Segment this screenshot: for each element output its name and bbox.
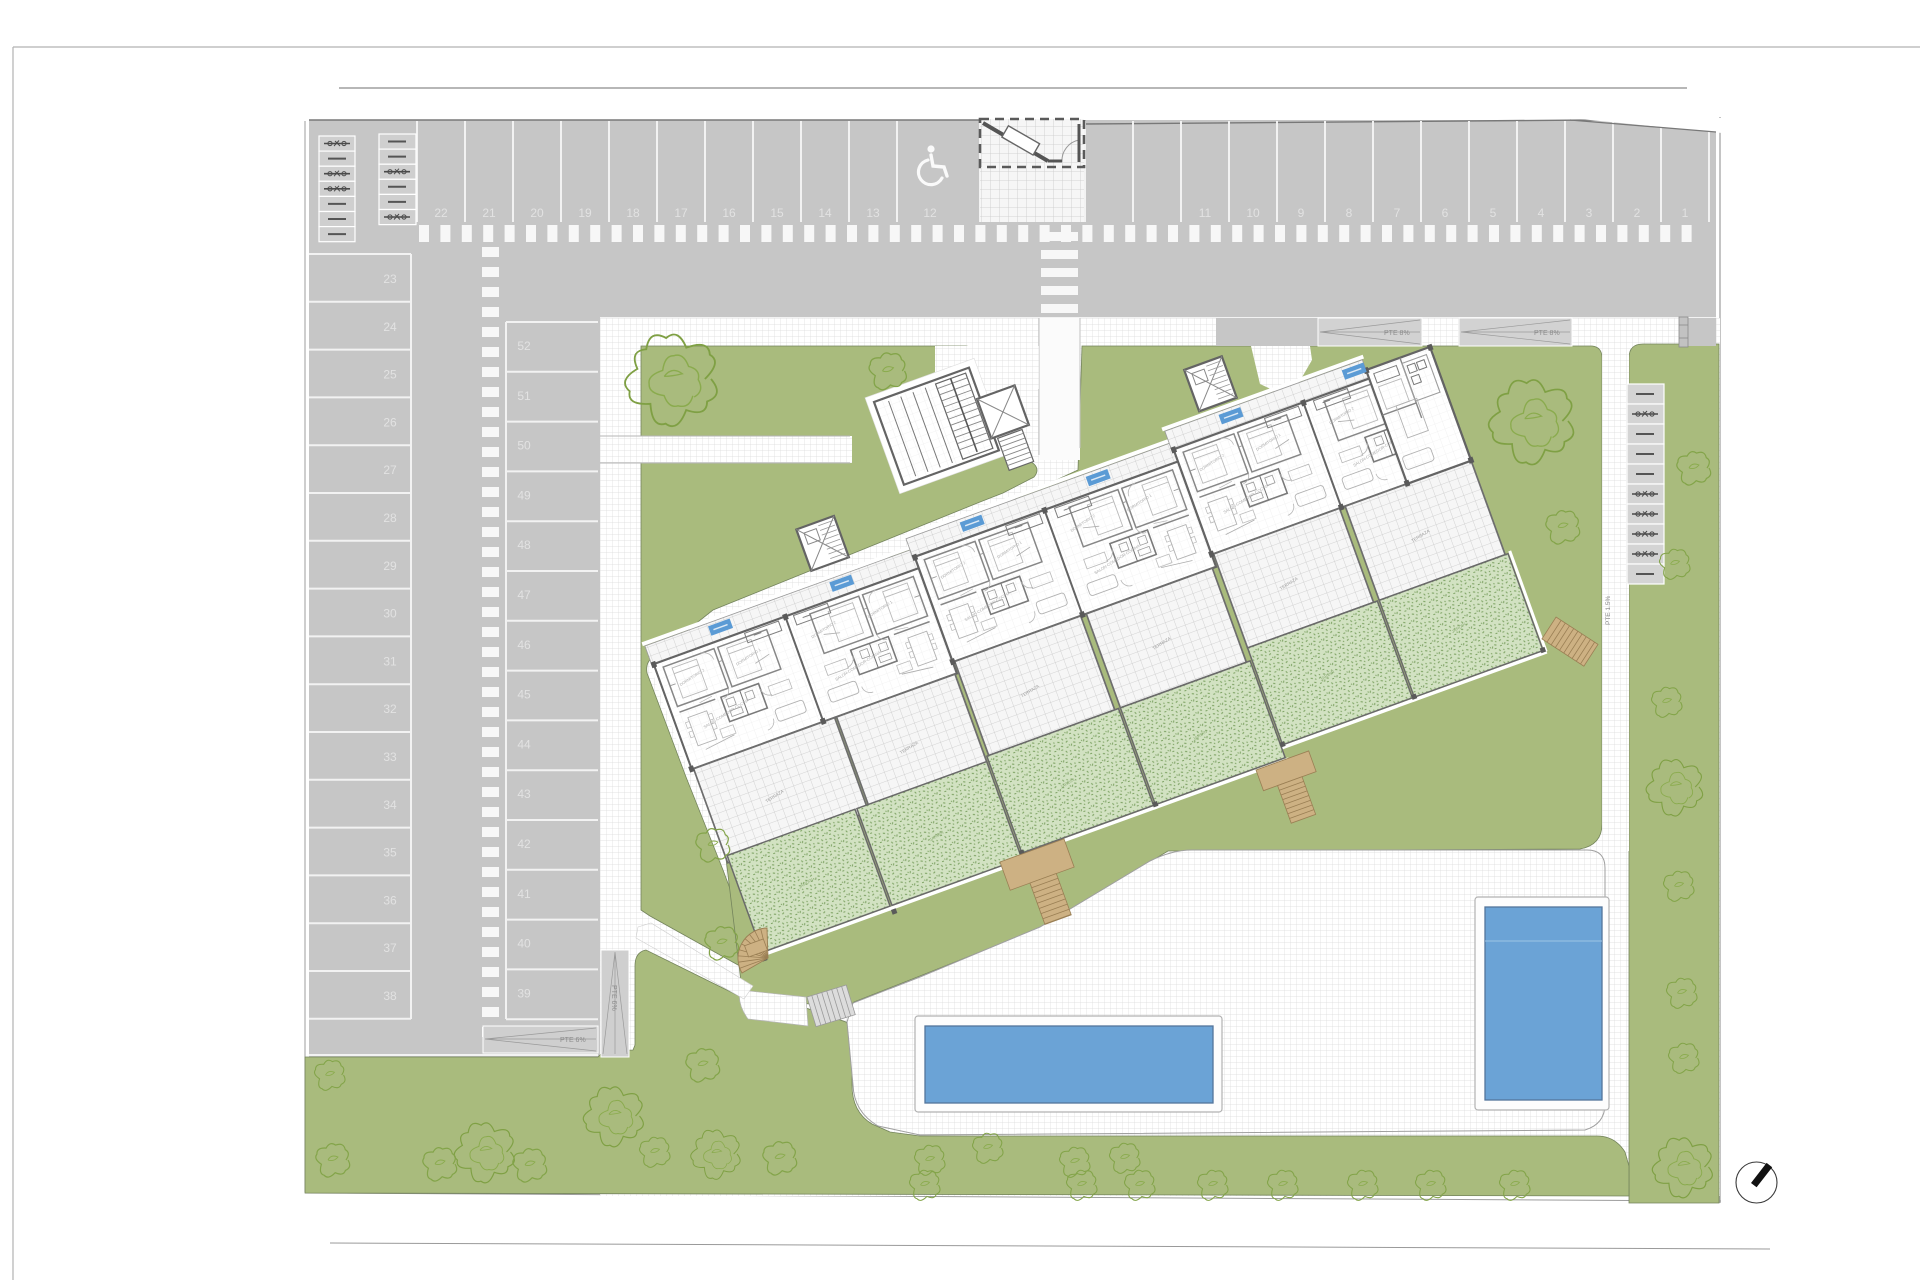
svg-text:27: 27 (383, 463, 397, 477)
svg-text:42: 42 (517, 837, 531, 851)
svg-text:2: 2 (1634, 206, 1641, 220)
svg-text:43: 43 (517, 787, 531, 801)
svg-text:39: 39 (517, 986, 531, 1000)
svg-text:21: 21 (482, 206, 496, 220)
svg-text:7: 7 (1394, 206, 1401, 220)
svg-text:11: 11 (1199, 206, 1212, 220)
svg-text:12: 12 (923, 206, 937, 220)
svg-text:49: 49 (517, 488, 531, 502)
svg-text:41: 41 (517, 887, 531, 901)
svg-text:18: 18 (626, 206, 640, 220)
svg-text:19: 19 (578, 206, 592, 220)
svg-text:15: 15 (770, 206, 784, 220)
svg-text:30: 30 (383, 607, 397, 621)
svg-text:17: 17 (674, 206, 688, 220)
svg-text:35: 35 (383, 846, 397, 860)
svg-text:37: 37 (383, 941, 397, 955)
svg-text:45: 45 (517, 688, 531, 702)
svg-text:8: 8 (1346, 206, 1353, 220)
svg-text:3: 3 (1586, 206, 1593, 220)
svg-text:PTE 8%: PTE 8% (1534, 330, 1560, 337)
svg-text:34: 34 (383, 798, 397, 812)
svg-text:PTE 6%: PTE 6% (560, 1037, 586, 1044)
svg-text:33: 33 (383, 750, 397, 764)
svg-text:36: 36 (383, 893, 397, 907)
svg-text:51: 51 (517, 389, 531, 403)
svg-text:1: 1 (1682, 206, 1689, 220)
svg-text:10: 10 (1246, 206, 1260, 220)
svg-text:31: 31 (383, 654, 397, 668)
svg-text:5: 5 (1490, 206, 1497, 220)
svg-text:44: 44 (517, 737, 531, 751)
svg-text:50: 50 (517, 439, 531, 453)
svg-text:23: 23 (383, 272, 397, 286)
svg-text:32: 32 (383, 702, 397, 716)
svg-text:PTE 8%: PTE 8% (1384, 330, 1410, 337)
svg-text:4: 4 (1538, 206, 1545, 220)
svg-text:38: 38 (383, 989, 397, 1003)
svg-text:25: 25 (383, 368, 397, 382)
svg-text:46: 46 (517, 638, 531, 652)
svg-text:48: 48 (517, 538, 531, 552)
svg-text:40: 40 (517, 937, 531, 951)
svg-text:20: 20 (530, 206, 544, 220)
svg-text:13: 13 (866, 206, 880, 220)
svg-text:16: 16 (722, 206, 736, 220)
svg-text:PTE 1.5%: PTE 1.5% (1605, 596, 1612, 625)
svg-text:PTE 6%: PTE 6% (610, 985, 617, 1011)
svg-text:28: 28 (383, 511, 397, 525)
svg-text:24: 24 (383, 320, 397, 334)
svg-text:29: 29 (383, 559, 397, 573)
svg-text:6: 6 (1442, 206, 1449, 220)
svg-text:22: 22 (434, 206, 448, 220)
svg-text:52: 52 (517, 339, 531, 353)
svg-text:47: 47 (517, 588, 531, 602)
svg-text:14: 14 (818, 206, 832, 220)
svg-text:9: 9 (1298, 206, 1305, 220)
svg-text:26: 26 (383, 415, 397, 429)
